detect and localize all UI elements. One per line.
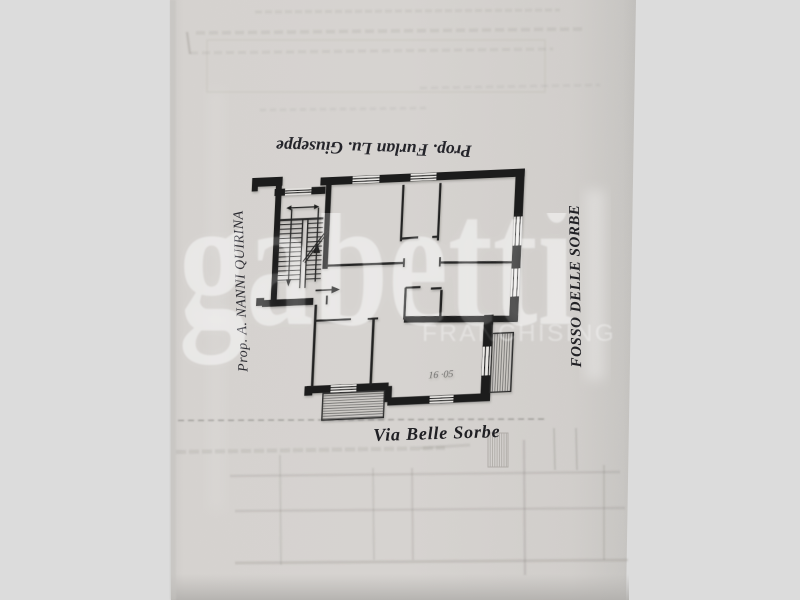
svg-text:FRANCHISING: FRANCHISING xyxy=(422,320,616,347)
svg-text:Via Belle Sorbe: Via Belle Sorbe xyxy=(373,421,501,445)
svg-text:16 ·05: 16 ·05 xyxy=(428,369,453,382)
